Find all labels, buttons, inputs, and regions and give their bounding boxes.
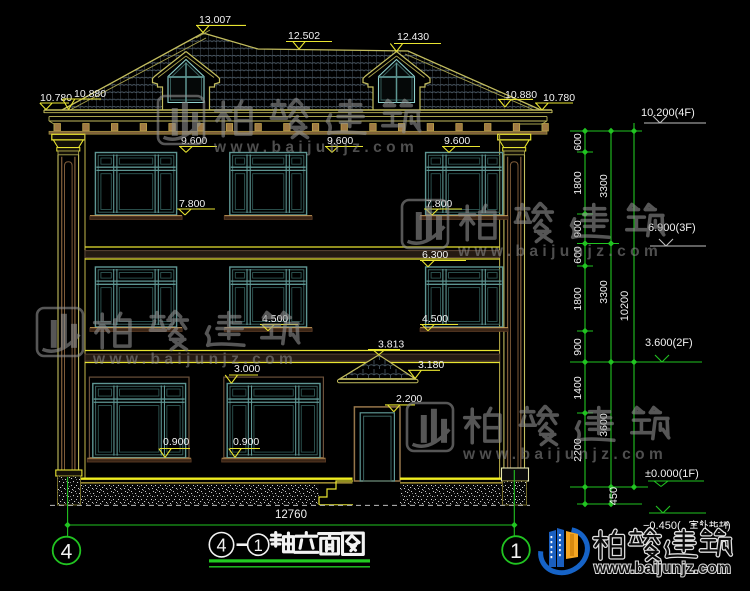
- svg-text:10.880: 10.880: [74, 88, 106, 100]
- svg-text:7.800: 7.800: [179, 198, 205, 210]
- svg-text:1400: 1400: [572, 376, 584, 400]
- svg-text:10.780: 10.780: [543, 92, 575, 104]
- svg-text:10200: 10200: [619, 291, 631, 322]
- svg-text:3.600(2F): 3.600(2F): [645, 337, 693, 349]
- svg-text:4: 4: [216, 536, 226, 556]
- svg-text:3300: 3300: [598, 174, 610, 198]
- svg-text:www.baijunjz.com: www.baijunjz.com: [593, 560, 731, 577]
- svg-text:): ): [727, 520, 731, 532]
- svg-text:1: 1: [254, 537, 263, 555]
- svg-text:±0.000(1F): ±0.000(1F): [645, 468, 699, 480]
- svg-text:1: 1: [510, 540, 522, 563]
- svg-text:−0.450(: −0.450(: [643, 520, 681, 532]
- svg-text:12.430: 12.430: [397, 31, 429, 43]
- svg-text:12760: 12760: [275, 509, 307, 521]
- svg-text:1800: 1800: [572, 287, 584, 311]
- svg-text:6.300: 6.300: [422, 249, 448, 261]
- svg-text:www.baijunjz.com: www.baijunjz.com: [213, 139, 418, 156]
- svg-text:450: 450: [608, 487, 620, 505]
- svg-text:10.200(4F): 10.200(4F): [641, 107, 695, 119]
- svg-text:3300: 3300: [598, 280, 610, 304]
- svg-text:0.900: 0.900: [233, 436, 259, 448]
- svg-text:600: 600: [572, 133, 584, 151]
- svg-text:www.baijunjz.com: www.baijunjz.com: [92, 351, 297, 368]
- svg-text:4.500: 4.500: [422, 313, 448, 325]
- svg-text:www.baijunjz.com: www.baijunjz.com: [462, 446, 667, 463]
- svg-text:3.180: 3.180: [418, 359, 444, 371]
- svg-text:900: 900: [572, 338, 584, 356]
- svg-text:10.780: 10.780: [40, 92, 72, 104]
- svg-text:3.813: 3.813: [378, 339, 404, 351]
- svg-text:0.900: 0.900: [163, 436, 189, 448]
- svg-text:9.600: 9.600: [444, 135, 470, 147]
- svg-text:www.baijunjz.com: www.baijunjz.com: [457, 243, 662, 260]
- svg-text:4: 4: [61, 541, 73, 564]
- svg-text:13.007: 13.007: [199, 14, 231, 26]
- svg-text:12.502: 12.502: [288, 30, 320, 42]
- svg-text:1800: 1800: [572, 171, 584, 195]
